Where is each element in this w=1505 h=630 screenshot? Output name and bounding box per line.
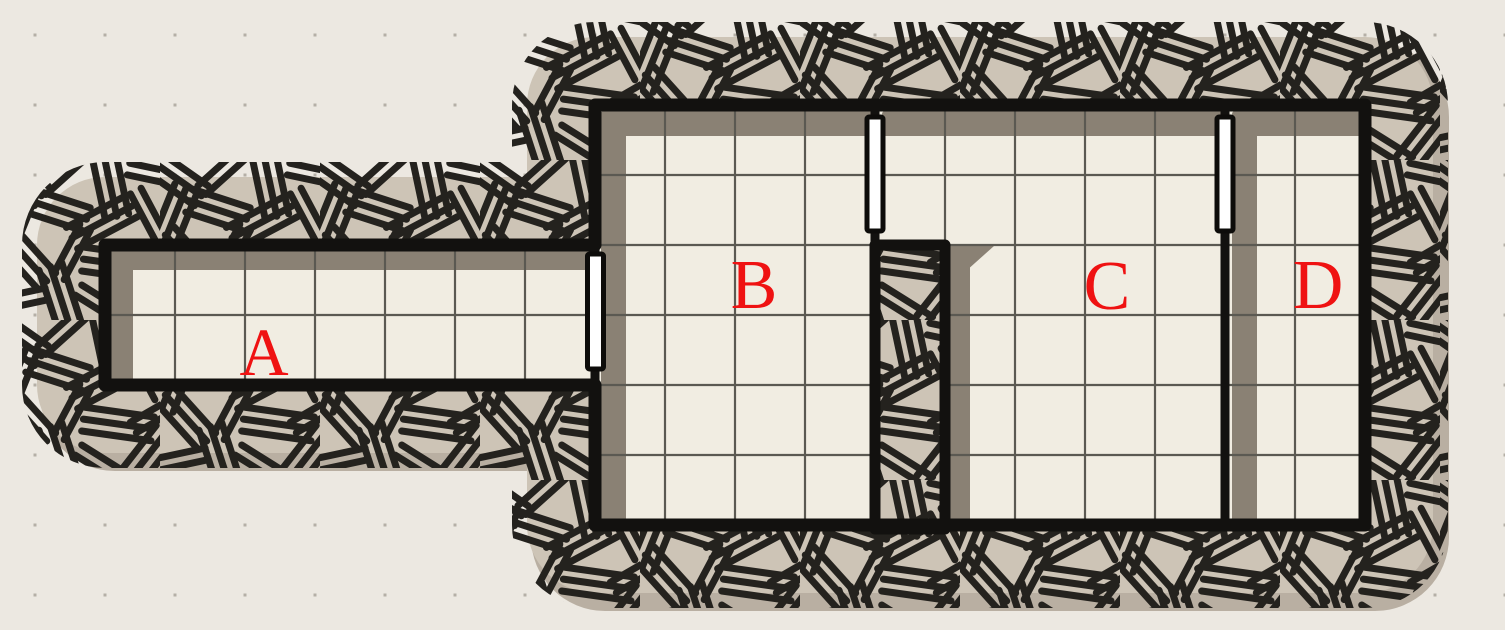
room-c-floor-hotspot[interactable] — [875, 105, 1225, 525]
dungeon-map-page: ABCD — [0, 0, 1505, 630]
room-b-floor-hotspot[interactable] — [595, 105, 875, 525]
room-a-floor-hotspot[interactable] — [105, 245, 595, 385]
dungeon-map-canvas: ABCD — [0, 0, 1505, 630]
room-d-floor-hotspot[interactable] — [1225, 105, 1365, 525]
